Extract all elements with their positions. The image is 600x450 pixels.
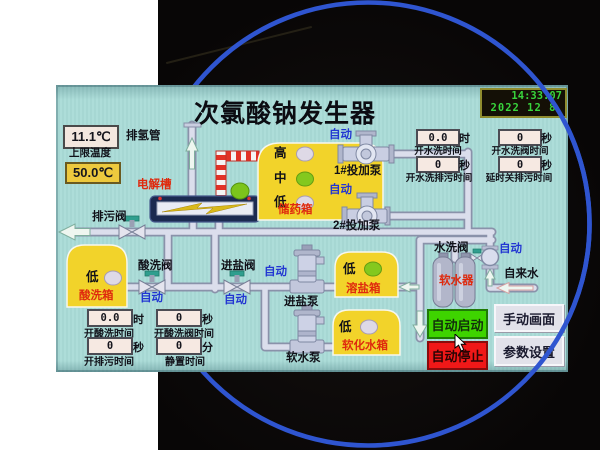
caption-delay-close: 延时关排污时间 bbox=[482, 170, 556, 184]
label-tap-water: 自来水 bbox=[504, 269, 539, 281]
clock-time: 14:33:07 bbox=[482, 90, 565, 102]
page-title: 次氯酸钠发生器 bbox=[190, 94, 380, 130]
clock-date: 2022 12 8 bbox=[482, 102, 565, 114]
electrolyzer-icon bbox=[150, 196, 260, 222]
temperature-limit-value[interactable]: 50.0℃ bbox=[65, 162, 121, 184]
label-salt-tank: 溶盐箱 bbox=[346, 284, 381, 296]
label-salt-valve: 进盐阀 bbox=[221, 261, 256, 273]
dosing-pump2-auto-badge: 自动 bbox=[329, 185, 352, 197]
salt-valve-auto-badge: 自动 bbox=[224, 295, 247, 307]
salt-tank-level-low: 低 bbox=[343, 263, 356, 276]
label-acid-tank: 酸洗箱 bbox=[79, 291, 114, 303]
label-acid-valve: 酸洗阀 bbox=[138, 261, 173, 273]
temperature-current: 11.1℃ bbox=[63, 125, 119, 149]
param-settings-button[interactable]: 参数设置 bbox=[494, 336, 564, 366]
label-dosing-pump-2: 2#投加泵 bbox=[333, 221, 380, 233]
dosing-pump1-auto-badge: 自动 bbox=[329, 130, 352, 142]
caption-wash-valve: 开水洗阀时间 bbox=[488, 143, 552, 157]
label-salt-pump: 进盐泵 bbox=[284, 297, 319, 309]
label-wash-valve: 水洗阀 bbox=[434, 243, 469, 255]
acid-tank-level-low: 低 bbox=[86, 271, 99, 284]
caption-settle: 静置时间 bbox=[160, 353, 210, 368]
storage-level-mid: 中 bbox=[274, 172, 287, 185]
salt-pump-auto-badge: 自动 bbox=[264, 267, 287, 279]
manual-screen-button[interactable]: 手动画面 bbox=[494, 304, 564, 332]
acid-valve-auto-badge: 自动 bbox=[140, 293, 163, 305]
hmi-screen: 次氯酸钠发生器 14:33:07 2022 12 8 11.1℃ 上限温度 50… bbox=[56, 85, 568, 372]
electrolyzer-status-lamp bbox=[231, 183, 249, 199]
mouse-cursor bbox=[454, 334, 468, 352]
pump-salt-icon[interactable] bbox=[290, 245, 324, 293]
label-soft-tank: 软化水箱 bbox=[342, 341, 388, 353]
caption-drain-open: 开排污时间 bbox=[78, 353, 140, 368]
temperature-limit-label: 上限温度 bbox=[69, 148, 111, 159]
caption-wash-drain: 开水洗排污时间 bbox=[404, 170, 474, 184]
label-softener: 软水器 bbox=[439, 276, 474, 288]
down-arrow-icon bbox=[413, 311, 427, 337]
soft-tank-level-low: 低 bbox=[339, 321, 352, 334]
label-soft-pump: 软水泵 bbox=[286, 353, 321, 365]
label-exhaust-pipe: 排氢管 bbox=[126, 131, 161, 143]
clock-display: 14:33:07 2022 12 8 bbox=[480, 88, 567, 118]
composite-image: 次氯酸钠发生器 14:33:07 2022 12 8 11.1℃ 上限温度 50… bbox=[0, 0, 600, 450]
label-storage-tank: 储药箱 bbox=[278, 205, 313, 217]
label-dosing-pump-1: 1#投加泵 bbox=[334, 166, 381, 178]
drain-left-arrow-icon bbox=[59, 224, 90, 240]
wash-valve-auto-badge: 自动 bbox=[499, 244, 522, 256]
label-electrolyzer: 电解槽 bbox=[137, 180, 172, 192]
label-drain-valve: 排污阀 bbox=[92, 212, 127, 224]
pump-softwater-icon[interactable] bbox=[290, 305, 324, 353]
caption-wash-start: 开水洗时间 bbox=[409, 143, 467, 157]
storage-level-high: 高 bbox=[274, 147, 287, 160]
